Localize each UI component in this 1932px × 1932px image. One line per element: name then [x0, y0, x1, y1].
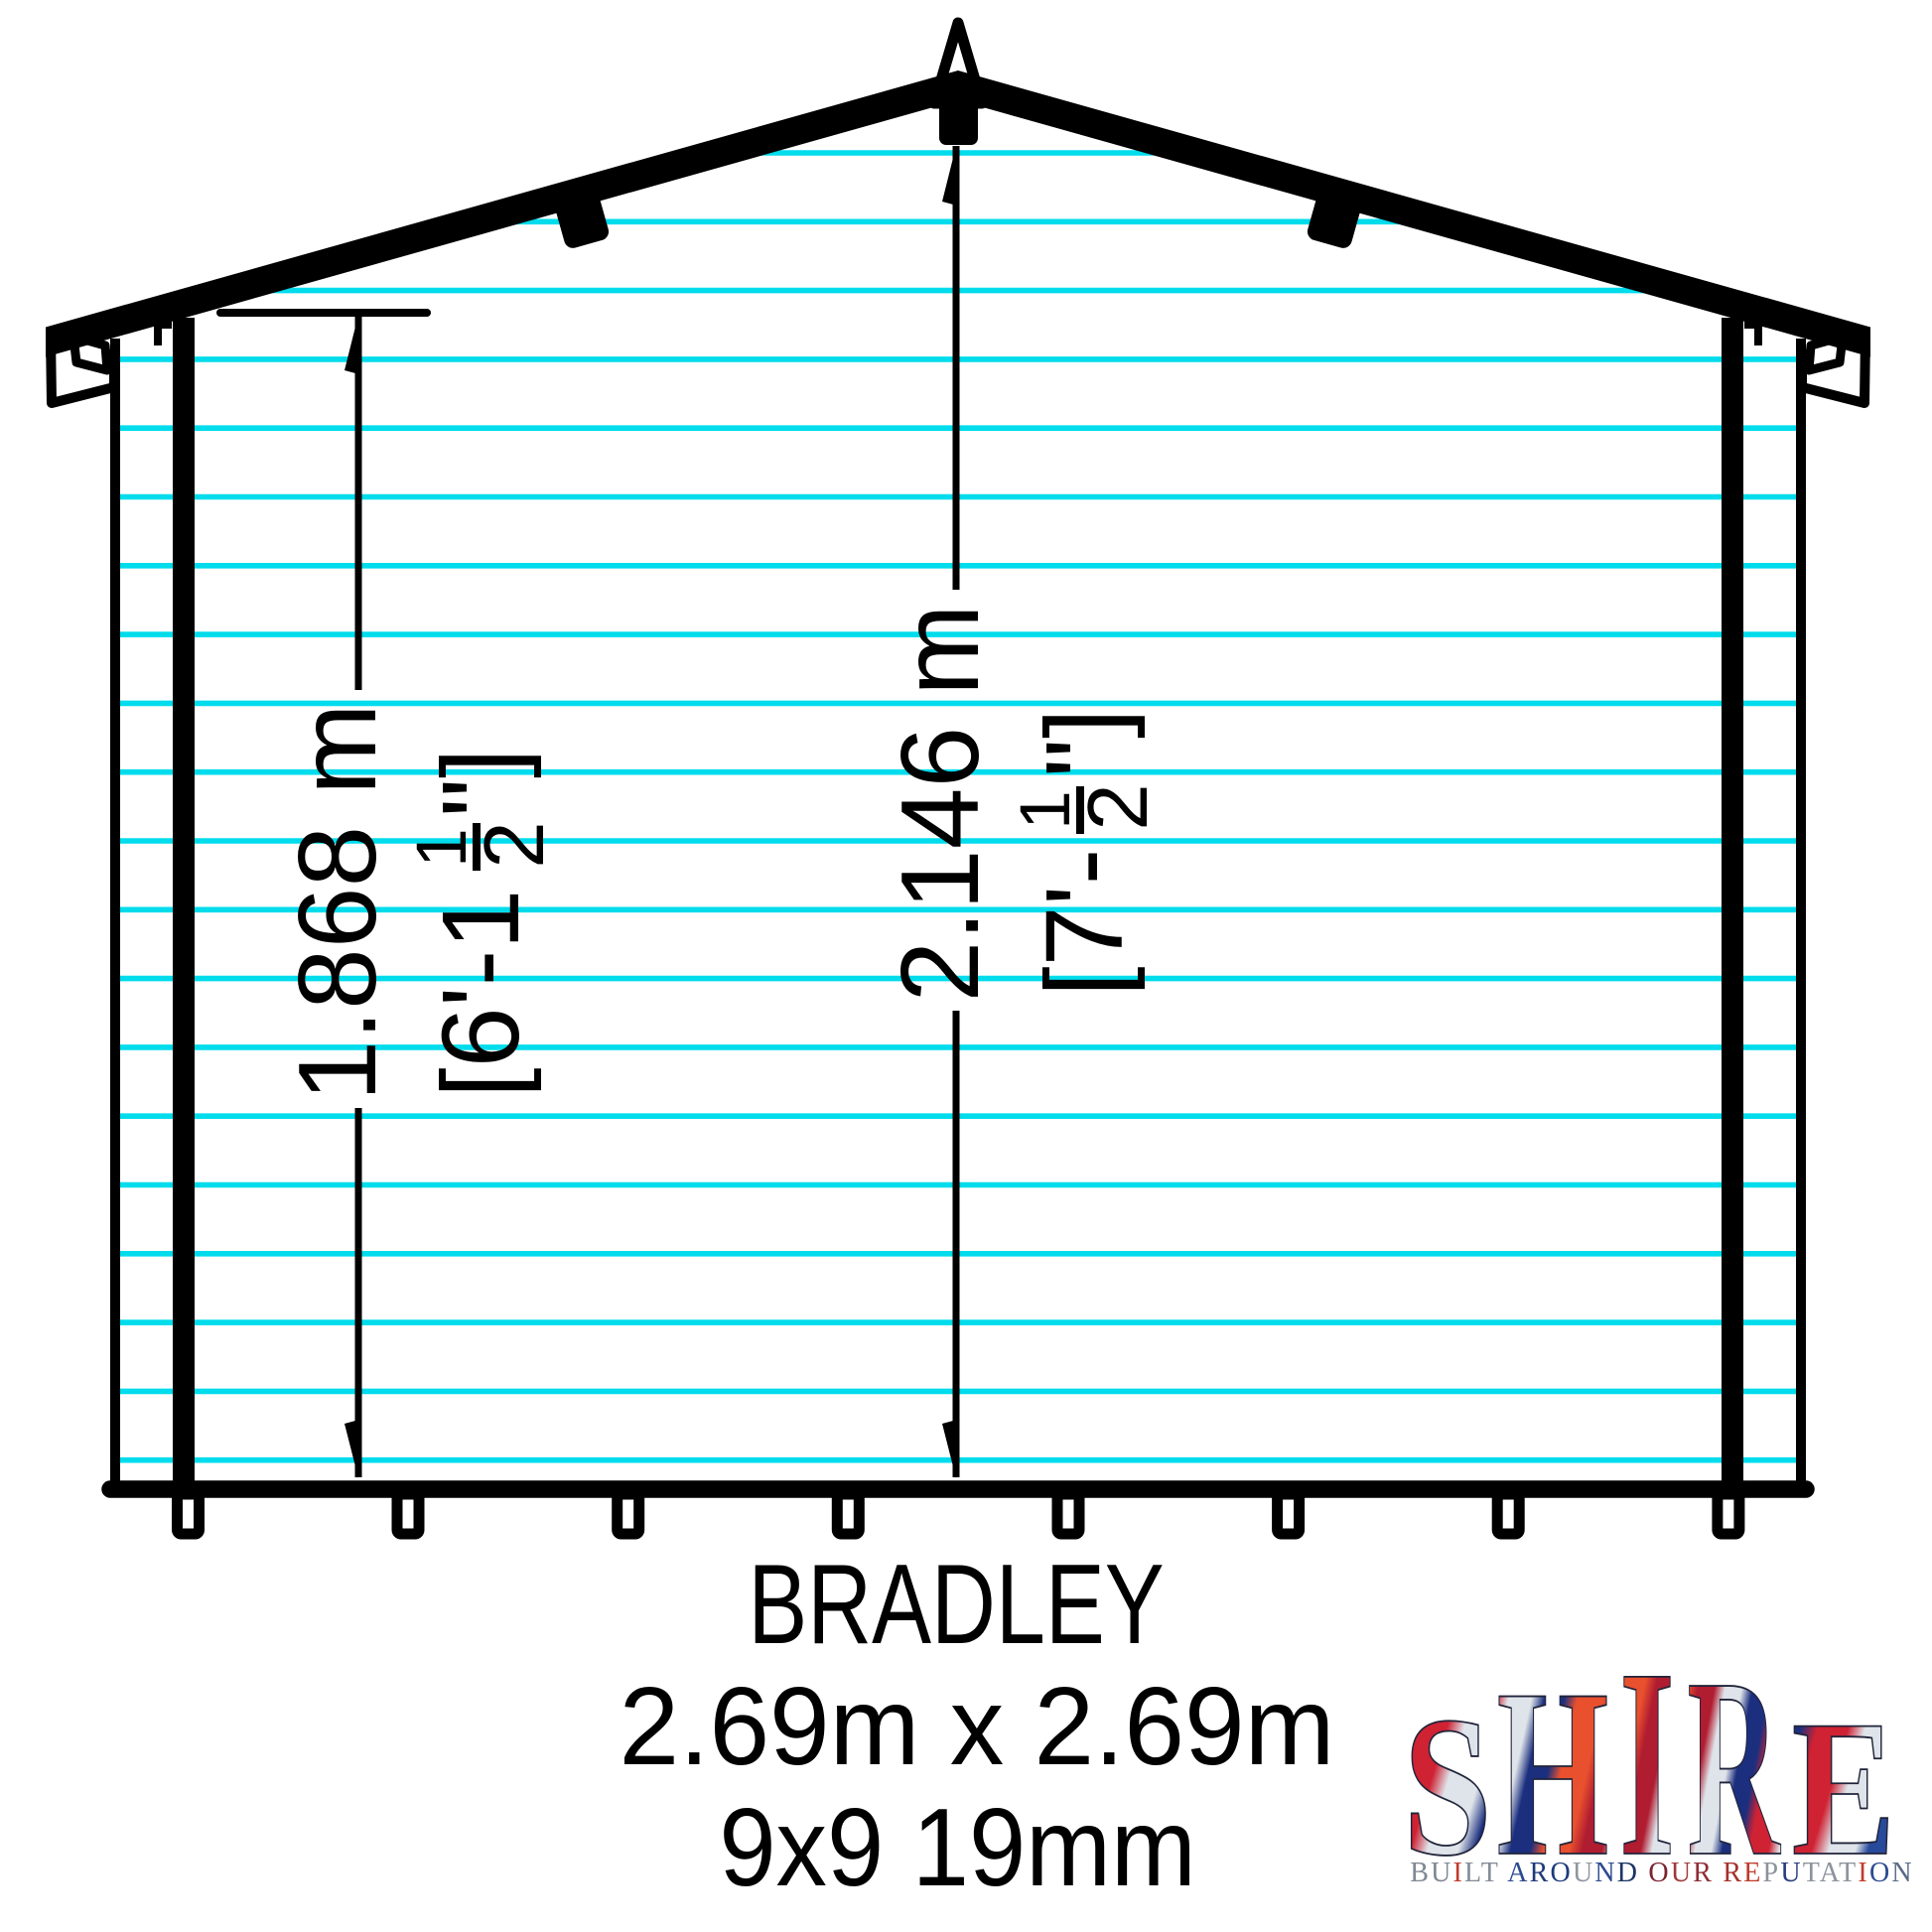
svg-text:2: 2 [468, 821, 562, 868]
svg-text:2: 2 [1071, 783, 1166, 830]
svg-text:BRADLEY: BRADLEY [748, 1541, 1164, 1668]
svg-text:BUILT AROUND OUR REPUTATION: BUILT AROUND OUR REPUTATION [1410, 1858, 1914, 1888]
svg-text:2.69m x 2.69m: 2.69m x 2.69m [620, 1665, 1335, 1788]
svg-text:1.868 m: 1.868 m [276, 703, 399, 1101]
svg-text:2.146 m: 2.146 m [879, 604, 1002, 1002]
svg-text:[7'-: [7'- [1024, 849, 1146, 997]
svg-text:[6'-1: [6'-1 [420, 889, 542, 1098]
svg-text:9x9 19mm: 9x9 19mm [719, 1785, 1195, 1908]
svg-text:"]: "] [420, 748, 542, 817]
svg-text:"]: "] [1024, 708, 1146, 777]
